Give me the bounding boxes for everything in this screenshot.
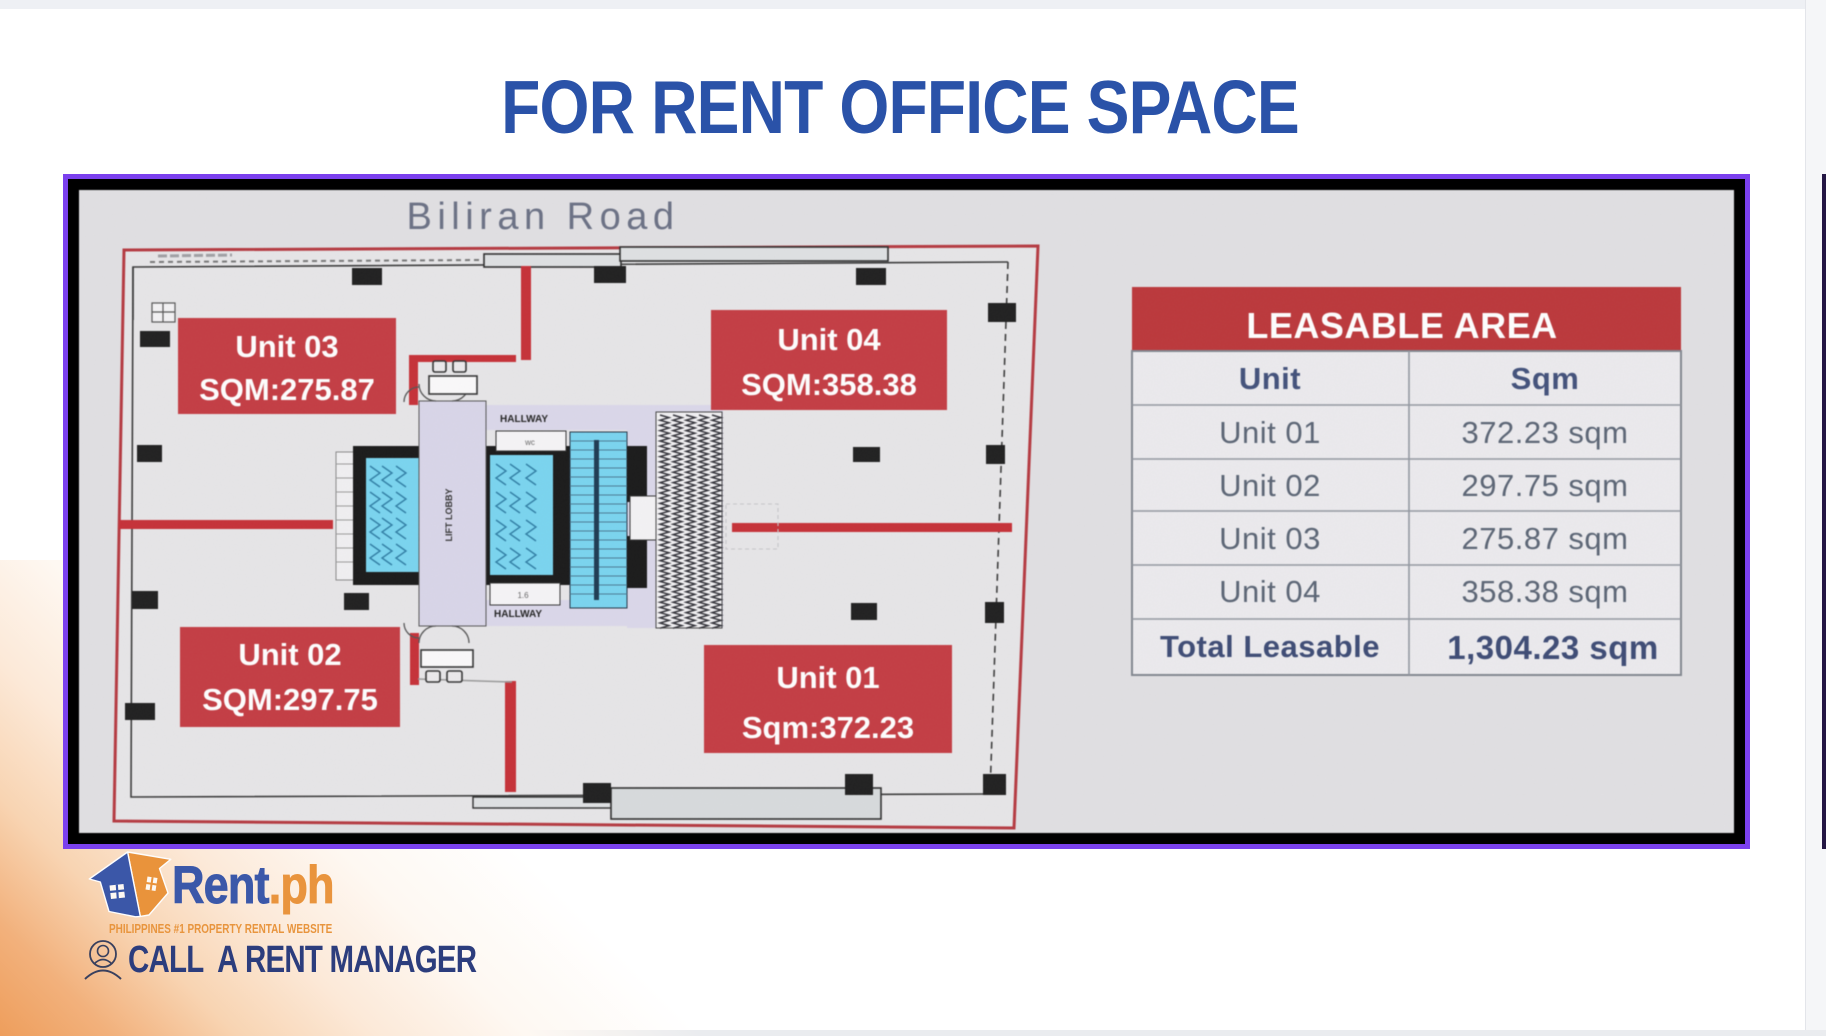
svg-text:Sqm: Sqm xyxy=(1511,361,1580,396)
svg-text:Unit 04: Unit 04 xyxy=(777,322,881,357)
svg-text:SQM:297.75: SQM:297.75 xyxy=(202,682,378,717)
svg-text:297.75 sqm: 297.75 sqm xyxy=(1462,468,1629,503)
svg-text:Unit 01: Unit 01 xyxy=(1219,415,1321,450)
svg-text:Total Leasable: Total Leasable xyxy=(1160,629,1380,664)
svg-text:HALLWAY: HALLWAY xyxy=(494,609,542,620)
svg-text:Unit: Unit xyxy=(1239,361,1301,396)
svg-text:Sqm:372.23: Sqm:372.23 xyxy=(742,710,914,745)
svg-text:Unit 02: Unit 02 xyxy=(1219,468,1321,503)
svg-text:1.6: 1.6 xyxy=(517,591,529,600)
svg-text:Unit 02: Unit 02 xyxy=(238,637,341,672)
svg-text:Unit 03: Unit 03 xyxy=(235,329,338,364)
svg-text:LIFT LOBBY: LIFT LOBBY xyxy=(444,489,454,542)
svg-text:HALLWAY: HALLWAY xyxy=(500,414,548,425)
svg-text:wc: wc xyxy=(524,438,535,447)
svg-text:372.23 sqm: 372.23 sqm xyxy=(1462,415,1629,450)
svg-text:Unit 03: Unit 03 xyxy=(1219,521,1321,556)
svg-text:358.38 sqm: 358.38 sqm xyxy=(1462,574,1629,609)
svg-text:Unit 01: Unit 01 xyxy=(776,660,879,695)
svg-text:Unit 04: Unit 04 xyxy=(1219,574,1321,609)
svg-text:SQM:358.38: SQM:358.38 xyxy=(741,367,917,402)
svg-text:275.87 sqm: 275.87 sqm xyxy=(1462,521,1629,556)
svg-text:1,304.23 sqm: 1,304.23 sqm xyxy=(1447,629,1658,666)
svg-text:LEASABLE AREA: LEASABLE AREA xyxy=(1246,305,1557,346)
svg-text:SQM:275.87: SQM:275.87 xyxy=(199,372,375,407)
svg-text:Biliran Road: Biliran Road xyxy=(407,196,680,238)
